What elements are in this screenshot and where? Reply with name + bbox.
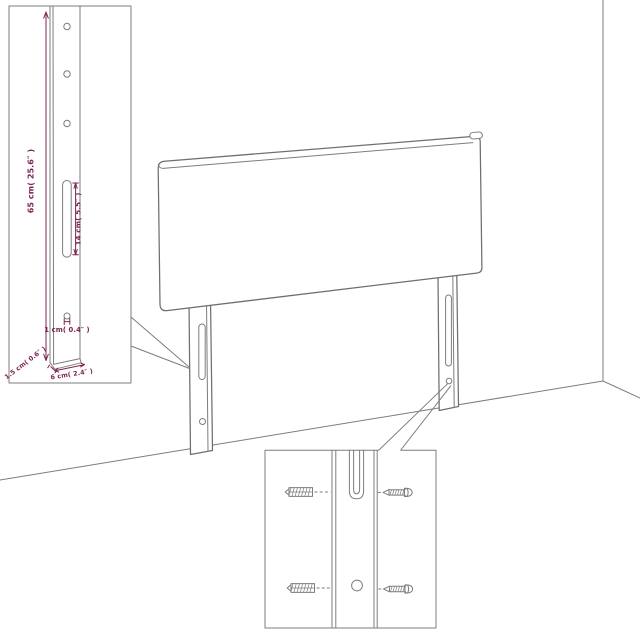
leg-hole-middle — [64, 71, 70, 77]
leg-slot — [63, 181, 72, 258]
dimension-slot: 14 cm( 5.5″ ) — [73, 183, 83, 255]
inset-border-with-gap — [265, 450, 436, 628]
leg-side-edge-inner — [53, 7, 54, 365]
callout-lines — [131, 317, 451, 450]
left-leg-slot — [199, 324, 205, 380]
mount-detail-inset — [265, 450, 436, 628]
product-diagram: 65 cm( 25.6″ ) 14 cm( 5.5″ ) 1 cm( 0.4″ … — [0, 0, 640, 640]
callout-left-upper — [131, 317, 189, 367]
panel-top-lip — [470, 132, 483, 140]
height-dim-label: 65 cm( 25.6″ ) — [27, 149, 36, 214]
right-leg-slot — [446, 295, 452, 366]
strip-hole — [352, 580, 363, 591]
callout-right-lower — [401, 386, 451, 450]
diagram-svg: 65 cm( 25.6″ ) 14 cm( 5.5″ ) 1 cm( 0.4″ … — [0, 0, 640, 640]
callout-left-lower — [131, 346, 190, 369]
leg-mount-hole — [64, 313, 70, 319]
right-leg-hole — [446, 378, 452, 384]
headboard-panel — [158, 132, 482, 311]
panel-face — [158, 136, 482, 310]
leg-hole-lower — [64, 120, 70, 126]
callout-right-upper — [379, 384, 448, 450]
hole-dim-label: 1 cm( 0.4″ ) — [44, 326, 89, 334]
floor-line-right — [603, 381, 640, 398]
leg-hole-top — [64, 23, 70, 29]
leg-detail-inset: 65 cm( 25.6″ ) 14 cm( 5.5″ ) 1 cm( 0.4″ … — [3, 6, 131, 383]
left-leg-hole — [200, 419, 206, 425]
slot-dim-label: 14 cm( 5.5″ ) — [74, 192, 83, 245]
headboard-left-leg — [189, 299, 213, 455]
